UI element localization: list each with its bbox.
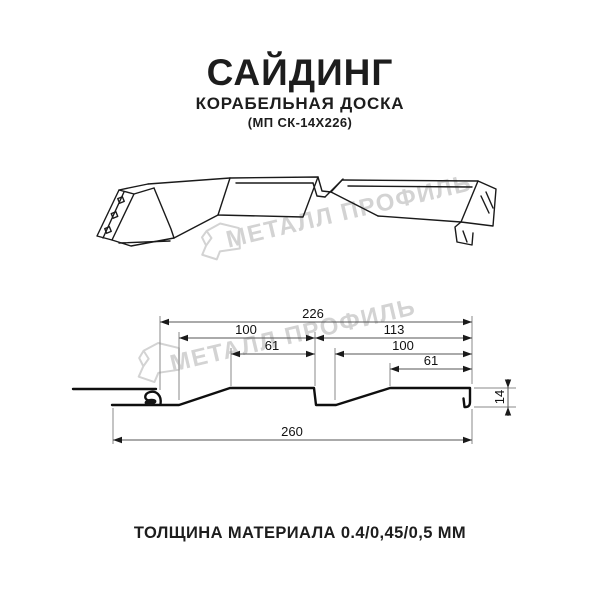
dim-label: 260: [281, 424, 303, 439]
profile-section-outline: [73, 388, 470, 407]
dim-right-inner: 100: [335, 338, 472, 357]
dim-right-face: 61: [390, 353, 472, 372]
dim-bottom-overall: 260: [113, 424, 472, 443]
dim-label: 14: [492, 390, 507, 404]
dim-top-overall: 226: [160, 306, 472, 325]
dim-label: 61: [424, 353, 438, 368]
dim-label: 226: [302, 306, 324, 321]
watermark-brand-text: МЕТАЛЛ ПРОФИЛЬ: [224, 169, 475, 253]
thickness-note: ТОЛЩИНА МАТЕРИАЛА 0.4/0,45/0,5 ММ: [0, 524, 600, 543]
dim-label: 100: [392, 338, 414, 353]
dim-label: 113: [384, 322, 405, 337]
dim-label: 100: [235, 322, 257, 337]
product-drawing-page: САЙДИНГ КОРАБЕЛЬНАЯ ДОСКА (МП СК-14Х226)…: [0, 0, 600, 600]
dim-height: 14: [492, 379, 511, 416]
extension-lines: [113, 316, 516, 444]
dim-label: 61: [265, 338, 279, 353]
drawing-area: МЕТАЛЛ ПРОФИЛЬ МЕТАЛЛ ПРОФИЛЬ: [0, 0, 600, 600]
watermark-brand-text: МЕТАЛЛ ПРОФИЛЬ: [168, 293, 419, 377]
